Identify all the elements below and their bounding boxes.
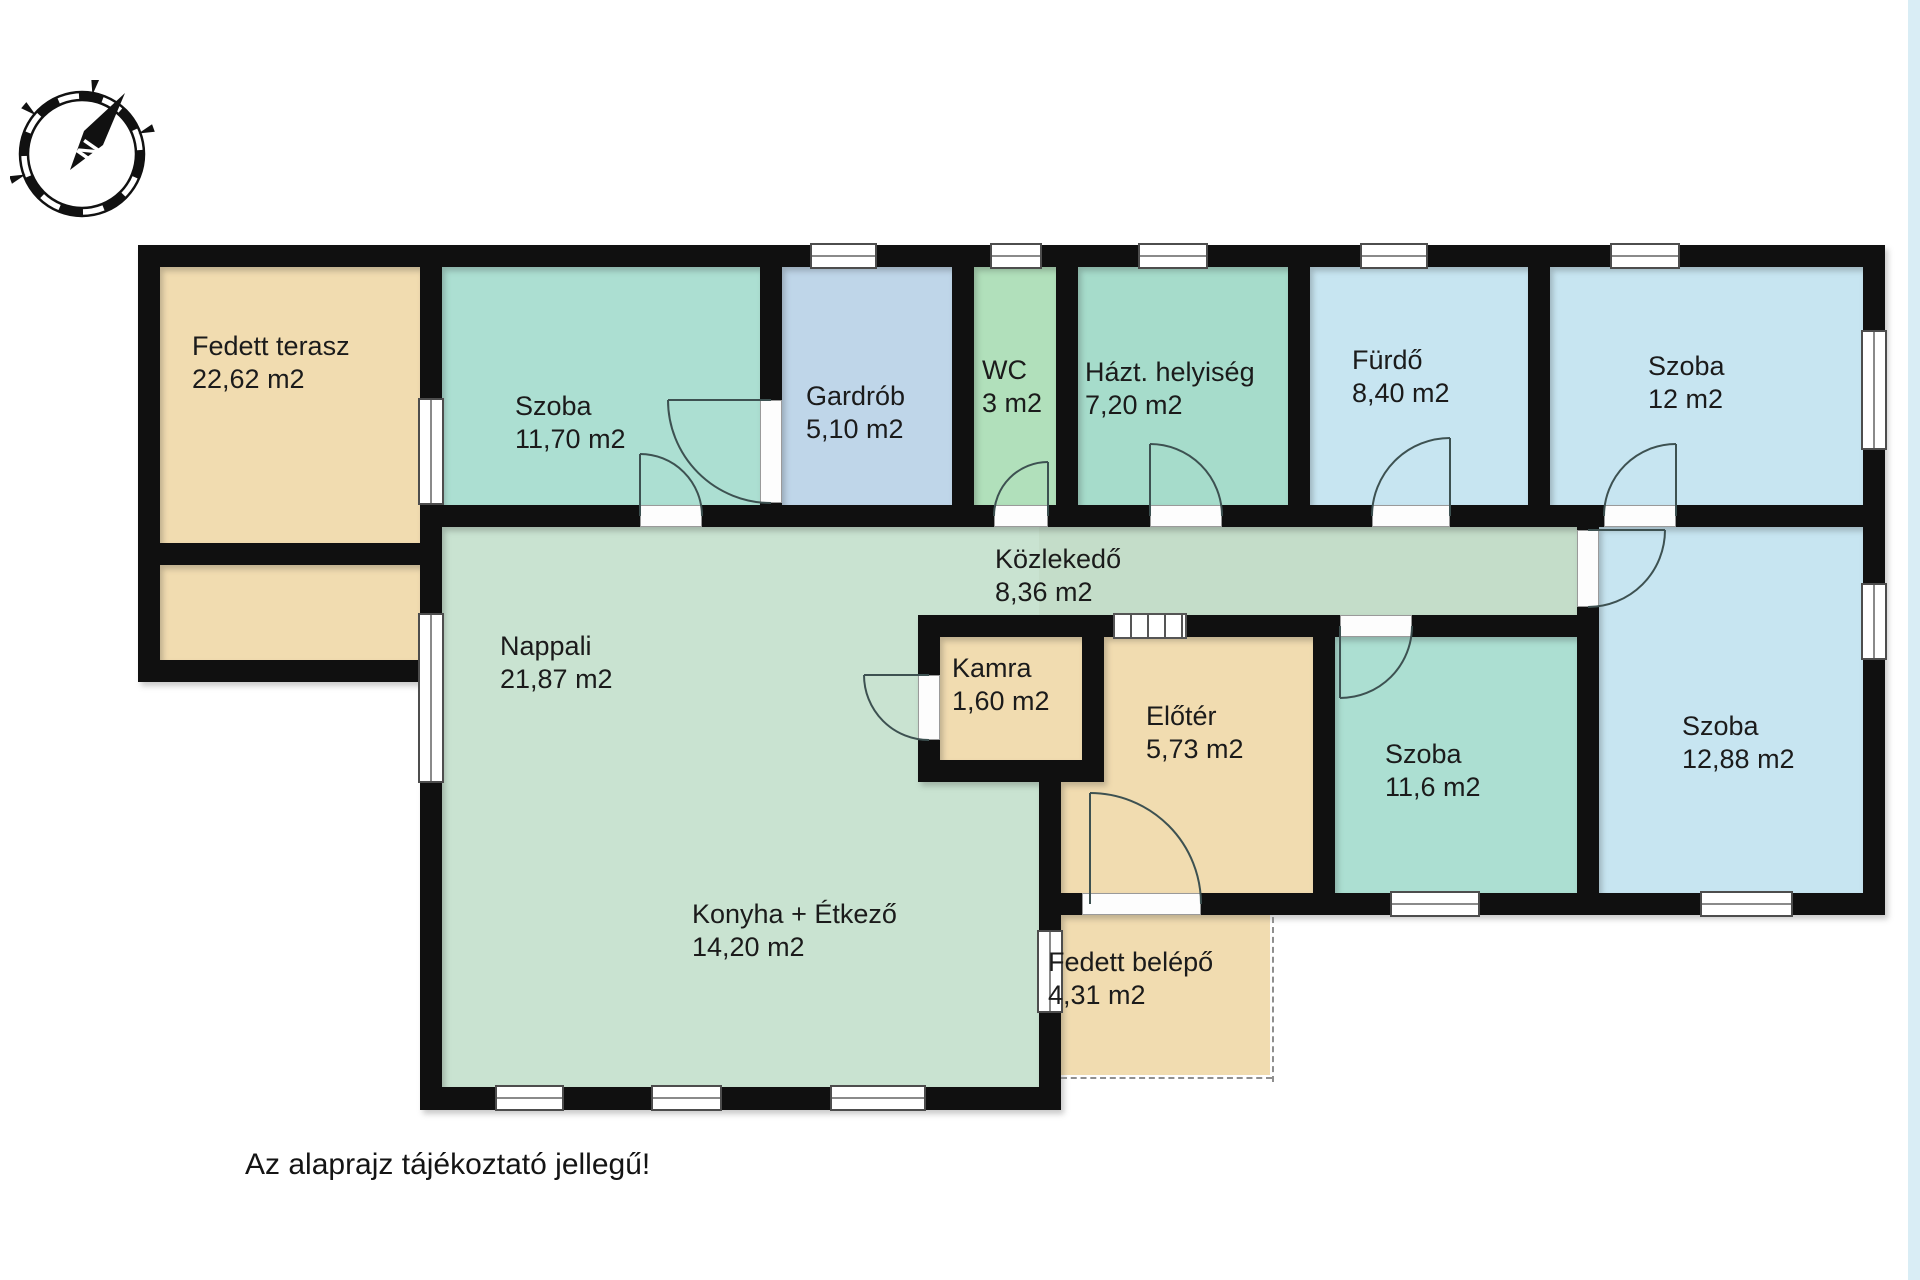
label-furdo-line: Fürdő [1352,344,1450,377]
label-szoba-116-line: Szoba [1385,738,1481,771]
label-szoba-12: Szoba12 m2 [1648,350,1725,416]
door-opening-1 [760,400,782,503]
page-edge-strip [1908,0,1920,1280]
label-szoba-12-line: 12 m2 [1648,383,1725,416]
label-gardrob: Gardrób5,10 m2 [806,380,905,446]
label-kamra-line: 1,60 m2 [952,685,1050,718]
label-konyha-etkezo-line: Konyha + Étkező [692,898,897,931]
open-edge-dashed-1 [1061,1075,1272,1079]
wall-segment-9 [1288,267,1310,527]
window-0 [810,243,877,269]
wall-segment-14 [1082,615,1104,782]
door-opening-2 [994,505,1048,527]
label-szoba-1170-line: 11,70 m2 [515,423,626,456]
window-4 [1610,243,1680,269]
wall-segment-4 [160,543,442,565]
label-szoba-12-line: Szoba [1648,350,1725,383]
wall-segment-17 [1313,615,1335,915]
wall-segment-8 [1056,267,1078,527]
wall-segment-2 [138,245,160,682]
floorplan-page: Fedett terasz22,62 m2Szoba11,70 m2Gardró… [0,0,1920,1280]
window-2 [1138,243,1208,269]
door-opening-0 [640,505,702,527]
open-edge-dashed-0 [1270,917,1274,1082]
window-5 [1861,330,1887,450]
label-gardrob-line: Gardrób [806,380,905,413]
wall-segment-3 [138,660,442,682]
window-10 [418,613,444,783]
label-hazt-helyiseg-line: Házt. helyiség [1085,356,1255,389]
window-11 [495,1085,564,1111]
label-kamra-line: Kamra [952,652,1050,685]
window-13 [830,1085,926,1111]
wall-segment-10 [1528,267,1550,527]
compass-icon: N [10,80,160,240]
door-opening-5 [1604,505,1676,527]
wall-segment-12 [918,615,1599,637]
window-7 [1390,891,1480,917]
walls-layer [0,0,1920,1280]
label-kozlekedo-line: 8,36 m2 [995,576,1121,609]
wall-segment-15 [918,760,1104,782]
door-opening-9 [1082,893,1201,915]
door-opening-6 [1577,530,1599,607]
label-wc-line: 3 m2 [982,387,1042,420]
disclaimer-note: Az alaprajz tájékoztató jellegű! [245,1148,650,1182]
label-hazt-helyiseg-line: 7,20 m2 [1085,389,1255,422]
label-fedett-terasz-line: Fedett terasz [192,330,350,363]
label-konyha-etkezo: Konyha + Étkező14,20 m2 [692,898,897,964]
label-szoba-1288-line: Szoba [1682,710,1795,743]
label-eloter: Előtér5,73 m2 [1146,700,1244,766]
window-12 [651,1085,722,1111]
label-fedett-terasz-line: 22,62 m2 [192,363,350,396]
label-szoba-1170: Szoba11,70 m2 [515,390,626,456]
door-opening-8 [918,675,940,740]
label-eloter-line: Előtér [1146,700,1244,733]
sliding-door-0 [1113,613,1187,639]
label-wc: WC3 m2 [982,354,1042,420]
label-fedett-belepo-line: Fedett belépő [1048,946,1213,979]
wall-segment-7 [952,267,974,527]
label-konyha-etkezo-line: 14,20 m2 [692,931,897,964]
label-furdo-line: 8,40 m2 [1352,377,1450,410]
label-szoba-1170-line: Szoba [515,390,626,423]
label-furdo: Fürdő8,40 m2 [1352,344,1450,410]
door-opening-4 [1372,505,1450,527]
label-kozlekedo: Közlekedő8,36 m2 [995,543,1121,609]
label-kamra: Kamra1,60 m2 [952,652,1050,718]
door-opening-3 [1150,505,1222,527]
label-fedett-terasz: Fedett terasz22,62 m2 [192,330,350,396]
window-3 [1360,243,1428,269]
label-kozlekedo-line: Közlekedő [995,543,1121,576]
label-fedett-belepo: Fedett belépő4,31 m2 [1048,946,1213,1012]
label-szoba-1288: Szoba12,88 m2 [1682,710,1795,776]
label-hazt-helyiseg: Házt. helyiség7,20 m2 [1085,356,1255,422]
label-eloter-line: 5,73 m2 [1146,733,1244,766]
label-nappali-line: Nappali [500,630,613,663]
label-szoba-1288-line: 12,88 m2 [1682,743,1795,776]
label-nappali-line: 21,87 m2 [500,663,613,696]
label-szoba-116-line: 11,6 m2 [1385,771,1481,804]
label-gardrob-line: 5,10 m2 [806,413,905,446]
label-nappali: Nappali21,87 m2 [500,630,613,696]
label-wc-line: WC [982,354,1042,387]
window-8 [1700,891,1793,917]
window-1 [990,243,1042,269]
label-szoba-116: Szoba11,6 m2 [1385,738,1481,804]
door-opening-7 [1340,615,1412,637]
window-6 [1861,583,1887,660]
label-fedett-belepo-line: 4,31 m2 [1048,979,1213,1012]
window-9 [418,398,444,505]
